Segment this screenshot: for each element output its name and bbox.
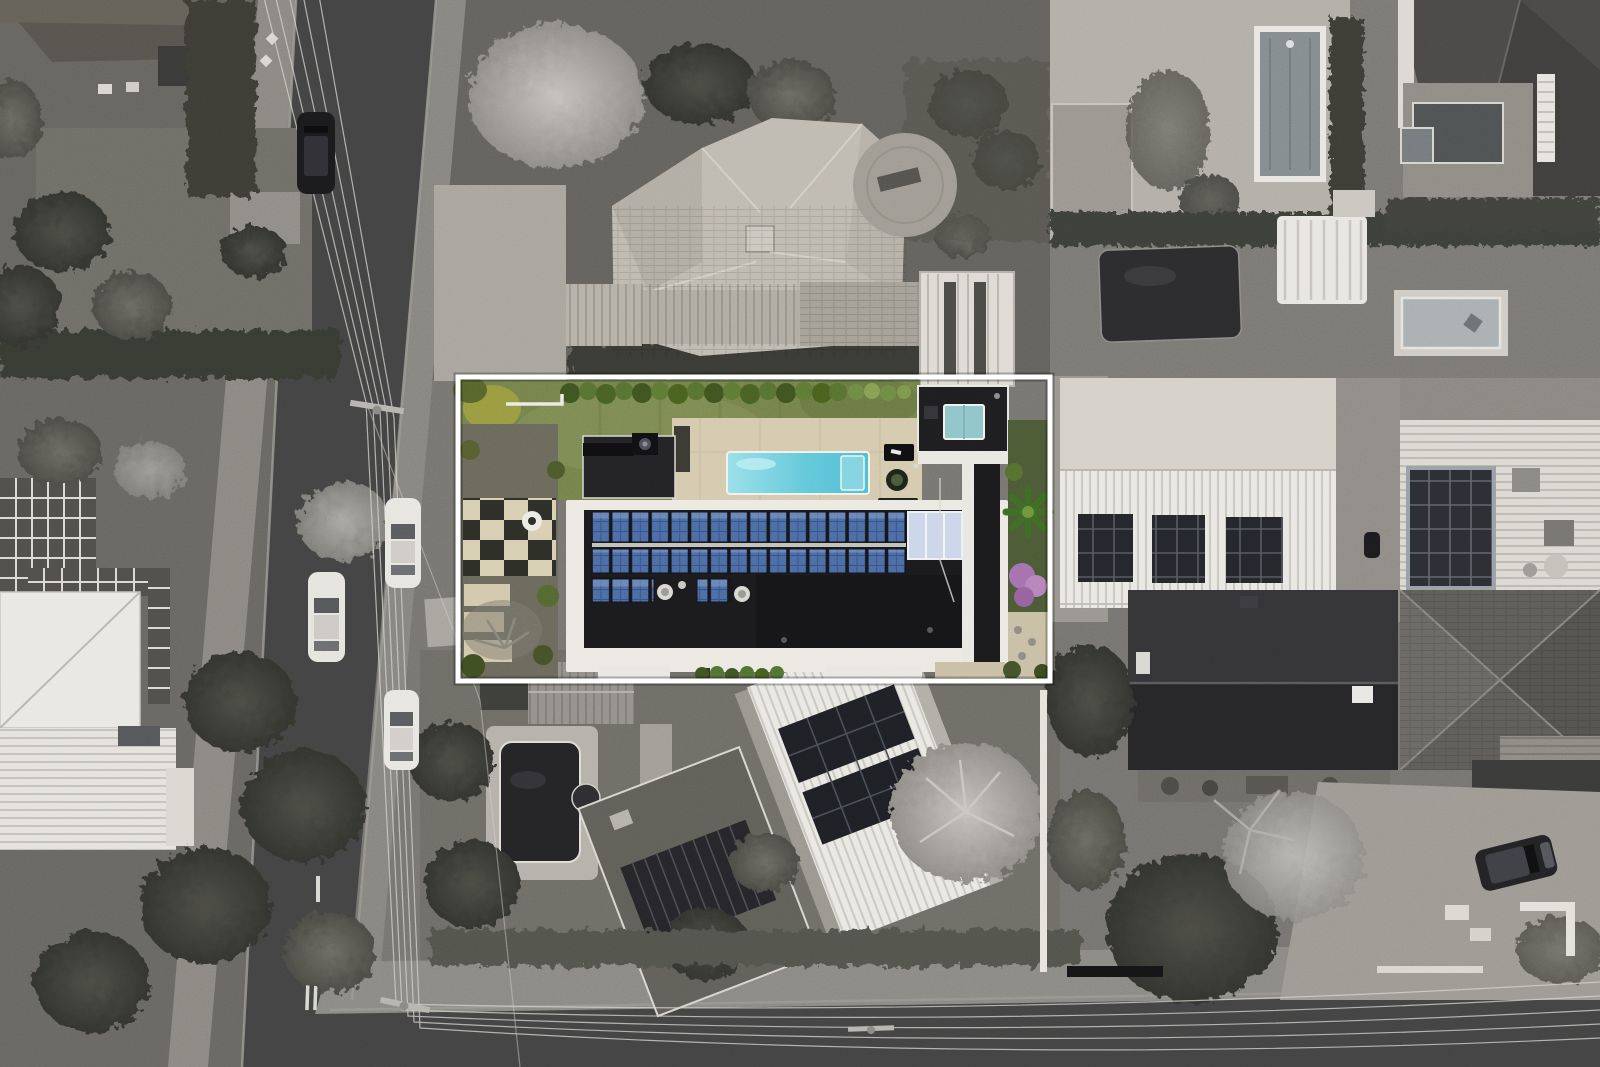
photo-grain [0,0,1600,1067]
aerial-photo-canvas [0,0,1600,1067]
aerial-photo [0,0,1600,1067]
